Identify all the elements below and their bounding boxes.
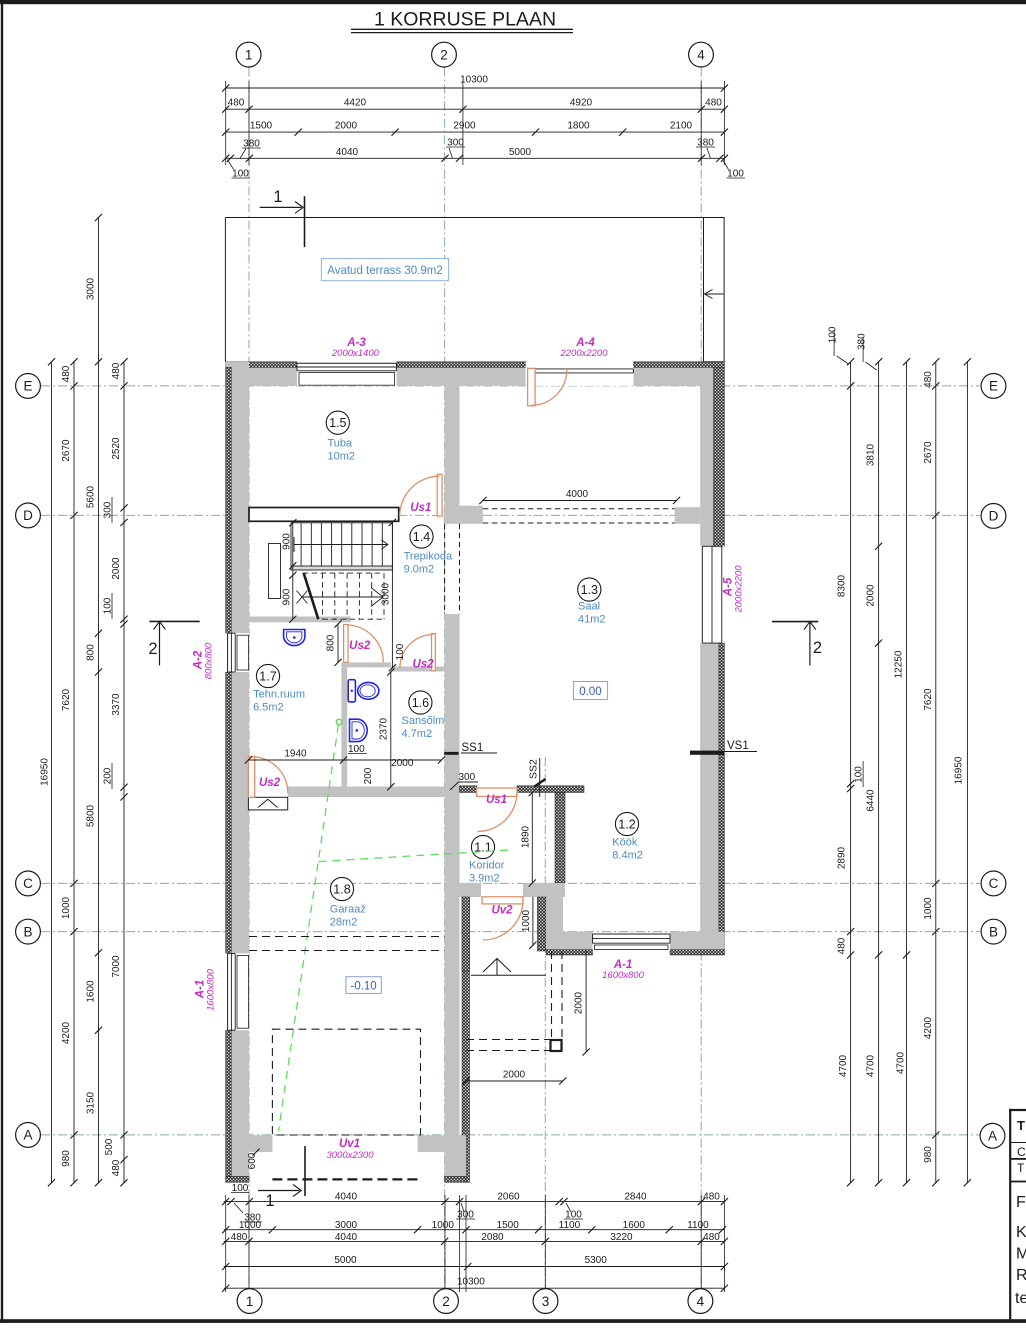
svg-text:100: 100	[828, 326, 839, 343]
svg-text:C: C	[23, 876, 33, 891]
svg-text:1500: 1500	[250, 120, 273, 131]
svg-text:2060: 2060	[497, 1191, 520, 1202]
svg-text:1.4: 1.4	[413, 530, 430, 544]
svg-text:1000: 1000	[432, 1220, 455, 1231]
svg-text:2520: 2520	[111, 437, 122, 460]
svg-text:2: 2	[148, 640, 157, 658]
svg-text:1.8: 1.8	[333, 882, 350, 896]
svg-text:E: E	[23, 379, 32, 394]
svg-text:300: 300	[459, 772, 476, 783]
svg-text:Us1: Us1	[486, 794, 507, 806]
svg-text:1000: 1000	[521, 909, 532, 932]
svg-text:900: 900	[282, 588, 293, 605]
svg-text:4700: 4700	[895, 1051, 906, 1074]
svg-text:A: A	[23, 1128, 32, 1143]
svg-text:-0.10: -0.10	[350, 981, 376, 993]
svg-text:1: 1	[265, 1192, 274, 1210]
svg-text:2840: 2840	[624, 1191, 647, 1202]
svg-text:4200: 4200	[923, 1016, 934, 1039]
svg-text:C: C	[1017, 1145, 1026, 1159]
svg-text:28m2: 28m2	[330, 917, 358, 929]
svg-text:16950: 16950	[40, 758, 51, 786]
svg-text:4.7m2: 4.7m2	[402, 728, 433, 740]
svg-text:2: 2	[813, 639, 822, 657]
svg-text:2370: 2370	[379, 717, 390, 740]
svg-text:12250: 12250	[894, 650, 905, 678]
svg-text:K: K	[1016, 1224, 1026, 1241]
svg-text:2200x2200: 2200x2200	[559, 348, 608, 359]
svg-text:D: D	[23, 508, 33, 523]
svg-text:6.5m2: 6.5m2	[253, 702, 284, 714]
svg-text:480: 480	[923, 371, 934, 388]
svg-text:10300: 10300	[457, 1277, 485, 1288]
svg-text:41m2: 41m2	[578, 614, 606, 626]
svg-text:2890: 2890	[837, 846, 848, 869]
svg-text:B: B	[989, 924, 998, 939]
svg-text:4420: 4420	[344, 98, 367, 109]
svg-text:SS2: SS2	[528, 759, 540, 779]
svg-text:480: 480	[703, 1191, 720, 1202]
svg-text:5300: 5300	[585, 1255, 608, 1266]
svg-text:4: 4	[697, 1294, 705, 1309]
svg-text:1000: 1000	[61, 896, 72, 919]
svg-text:2100: 2100	[670, 120, 693, 131]
svg-text:Us2: Us2	[412, 659, 434, 671]
svg-text:Saal: Saal	[578, 601, 600, 613]
svg-text:4700: 4700	[838, 1054, 849, 1077]
svg-text:2000: 2000	[391, 758, 414, 769]
svg-text:4040: 4040	[336, 147, 359, 158]
svg-text:1000: 1000	[239, 1220, 262, 1231]
svg-text:5000: 5000	[334, 1255, 357, 1266]
svg-text:A: A	[988, 1129, 997, 1144]
svg-text:5600: 5600	[86, 485, 97, 508]
svg-text:200: 200	[363, 767, 374, 784]
svg-text:5800: 5800	[86, 804, 97, 827]
svg-text:5000: 5000	[509, 147, 532, 158]
svg-text:1: 1	[246, 1294, 254, 1309]
svg-text:1100: 1100	[559, 1220, 581, 1231]
svg-text:3000: 3000	[381, 582, 392, 605]
svg-text:1600x800: 1600x800	[602, 970, 644, 981]
svg-text:1600: 1600	[623, 1220, 646, 1231]
svg-text:480: 480	[705, 98, 722, 109]
svg-text:1800: 1800	[567, 120, 590, 131]
svg-text:10m2: 10m2	[328, 451, 356, 463]
svg-text:2000x2200: 2000x2200	[734, 565, 745, 614]
svg-text:1.3: 1.3	[581, 583, 598, 597]
svg-text:1940: 1940	[284, 749, 307, 760]
svg-text:1890: 1890	[521, 825, 532, 848]
svg-text:2900: 2900	[453, 120, 476, 131]
svg-text:D: D	[989, 509, 999, 524]
svg-text:4200: 4200	[61, 1021, 72, 1044]
svg-text:2000: 2000	[111, 557, 122, 580]
svg-text:C: C	[989, 876, 999, 891]
svg-text:1 KORRUSE PLAAN: 1 KORRUSE PLAAN	[374, 9, 556, 31]
svg-text:1: 1	[273, 188, 282, 206]
svg-text:16950: 16950	[953, 756, 964, 784]
svg-text:Us2: Us2	[259, 777, 281, 789]
svg-text:2080: 2080	[481, 1232, 504, 1243]
svg-text:1600: 1600	[86, 980, 97, 1003]
svg-text:Trepikoda: Trepikoda	[404, 551, 453, 563]
svg-text:480: 480	[111, 1159, 122, 1176]
svg-text:2000: 2000	[866, 584, 877, 607]
svg-text:1.7: 1.7	[259, 669, 276, 683]
svg-text:480: 480	[703, 1232, 720, 1243]
svg-text:2000: 2000	[574, 991, 585, 1014]
svg-text:3000x2300: 3000x2300	[326, 1150, 374, 1161]
svg-text:T: T	[1017, 1161, 1025, 1175]
svg-text:1600x800: 1600x800	[206, 968, 217, 1010]
svg-text:3.9m2: 3.9m2	[469, 872, 500, 884]
svg-text:100: 100	[395, 643, 406, 660]
svg-text:7620: 7620	[61, 688, 72, 711]
svg-text:500: 500	[104, 1138, 115, 1155]
svg-text:4040: 4040	[335, 1232, 358, 1243]
svg-text:3810: 3810	[866, 443, 877, 466]
svg-text:1: 1	[245, 47, 253, 62]
svg-text:480: 480	[837, 937, 848, 954]
svg-text:7620: 7620	[923, 688, 934, 711]
svg-text:9.0m2: 9.0m2	[404, 564, 435, 576]
svg-text:3370: 3370	[111, 693, 122, 716]
svg-text:Us1: Us1	[410, 502, 431, 514]
svg-text:980: 980	[61, 1150, 72, 1167]
svg-text:1500: 1500	[497, 1220, 520, 1231]
svg-text:480: 480	[231, 1232, 248, 1243]
svg-text:R: R	[1016, 1267, 1026, 1284]
svg-text:1.5: 1.5	[329, 416, 346, 430]
svg-text:Garaaž: Garaaž	[330, 904, 366, 916]
svg-text:Us2: Us2	[349, 640, 371, 652]
svg-text:2000: 2000	[503, 1070, 526, 1081]
svg-text:480: 480	[228, 98, 245, 109]
svg-text:Tuba: Tuba	[328, 438, 354, 450]
svg-text:3000: 3000	[335, 1220, 358, 1231]
svg-text:2: 2	[442, 1294, 450, 1309]
svg-text:E: E	[989, 379, 998, 394]
svg-text:4040: 4040	[335, 1191, 358, 1202]
svg-text:Koridor: Koridor	[469, 859, 505, 871]
svg-text:4920: 4920	[570, 98, 593, 109]
svg-text:8300: 8300	[837, 574, 848, 597]
svg-text:M: M	[1016, 1246, 1026, 1263]
svg-text:800x800: 800x800	[204, 642, 215, 679]
svg-text:1000: 1000	[923, 897, 934, 920]
svg-text:F: F	[1016, 1194, 1026, 1211]
svg-text:10300: 10300	[460, 75, 488, 86]
svg-text:Tehn.ruum: Tehn.ruum	[253, 689, 305, 701]
svg-text:Uv1: Uv1	[339, 1138, 360, 1150]
svg-text:T: T	[1017, 1118, 1025, 1133]
svg-text:8.4m2: 8.4m2	[612, 849, 643, 861]
svg-text:800: 800	[86, 644, 97, 661]
svg-text:6440: 6440	[866, 789, 877, 812]
svg-text:7000: 7000	[111, 955, 122, 978]
svg-text:4000: 4000	[566, 489, 589, 500]
svg-text:600: 600	[247, 1152, 258, 1169]
svg-text:te: te	[1015, 1290, 1026, 1307]
svg-text:VS1: VS1	[727, 740, 749, 752]
svg-text:4: 4	[697, 47, 705, 62]
svg-text:Sansõlm: Sansõlm	[402, 715, 445, 727]
svg-text:1.6: 1.6	[412, 696, 429, 710]
svg-text:2670: 2670	[61, 439, 72, 462]
svg-text:980: 980	[923, 1146, 934, 1163]
svg-text:480: 480	[61, 365, 72, 382]
svg-text:480: 480	[111, 362, 122, 379]
svg-text:B: B	[23, 924, 32, 939]
svg-text:2: 2	[440, 47, 448, 62]
svg-text:Köök: Köök	[612, 836, 638, 848]
svg-text:380: 380	[857, 333, 868, 350]
svg-text:3150: 3150	[86, 1091, 97, 1114]
svg-text:4700: 4700	[866, 1054, 877, 1077]
svg-text:900: 900	[282, 533, 293, 550]
svg-text:Avatud terrass 30.9m2: Avatud terrass 30.9m2	[327, 265, 443, 277]
svg-text:SS1: SS1	[462, 742, 484, 754]
svg-text:2000x1400: 2000x1400	[331, 348, 380, 359]
svg-text:1.2: 1.2	[618, 817, 635, 831]
svg-text:2670: 2670	[923, 441, 934, 464]
svg-text:Uv2: Uv2	[491, 905, 513, 917]
svg-text:1100: 1100	[687, 1220, 709, 1231]
svg-text:800: 800	[326, 634, 337, 651]
svg-text:3000: 3000	[86, 277, 97, 300]
svg-text:3: 3	[542, 1294, 550, 1309]
svg-text:3220: 3220	[610, 1232, 633, 1243]
svg-text:0.00: 0.00	[579, 686, 601, 698]
svg-text:2000: 2000	[335, 120, 358, 131]
